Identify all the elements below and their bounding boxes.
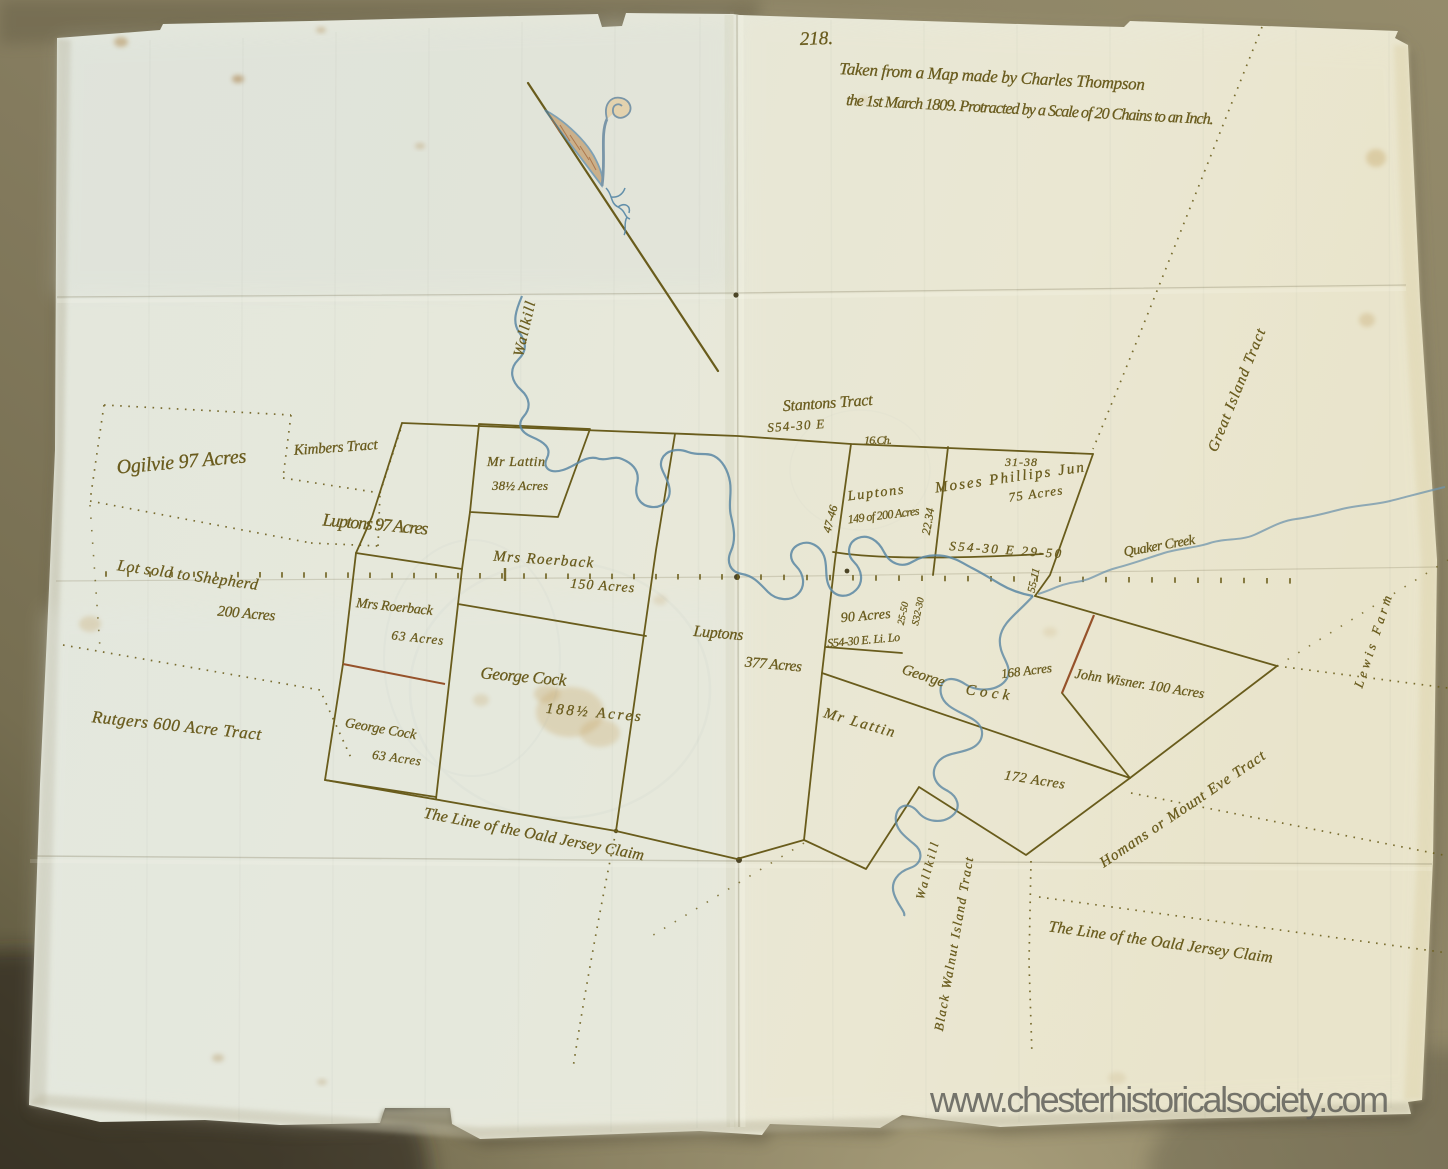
- svg-text:16.Ch.: 16.Ch.: [864, 433, 892, 447]
- svg-text:31-38: 31-38: [1004, 455, 1037, 469]
- svg-text:38½ Acres: 38½ Acres: [491, 478, 548, 493]
- svg-text:218.: 218.: [799, 28, 833, 50]
- svg-text:www.chesterhistoricalsociety.c: www.chesterhistoricalsociety.com: [929, 1079, 1387, 1120]
- svg-text:Mr Lattin: Mr Lattin: [486, 455, 545, 470]
